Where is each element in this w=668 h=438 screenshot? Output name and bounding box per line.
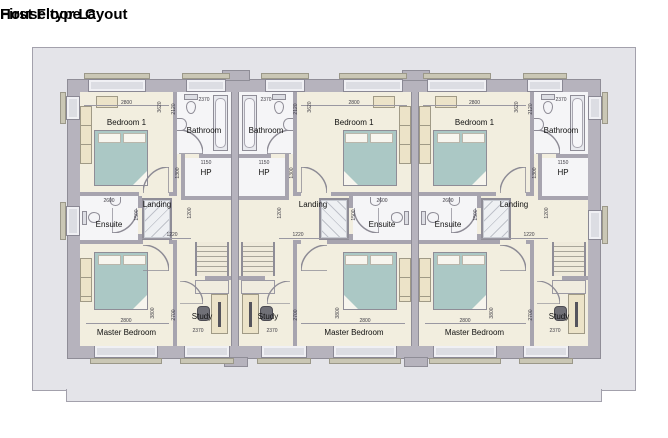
dim-study-width: 2370 [177,328,219,334]
pillow [370,255,393,265]
bed-master [343,252,397,310]
dim-stair-width: 1200 [187,202,193,224]
unit-2: Bedroom 1 Bathroom HP Landing Ensuite Ma… [239,92,411,346]
bed-bedroom1 [94,130,148,186]
pillow [123,133,146,143]
room-label-bathroom: Bathroom [534,126,588,135]
pillow [98,133,121,143]
door-arc-study [267,281,290,304]
linen-fold [472,295,486,309]
linen-fold [472,171,486,185]
dim-bedroom1-height: 3620 [307,96,313,118]
bathtub-inner [215,98,226,148]
room-label-master-bedroom: Master Bedroom [297,328,411,337]
bathtub-inner [244,98,255,148]
room-label-ensuite: Ensuite [419,220,477,229]
dim-hp-width: 1150 [183,160,229,166]
wall-bedroom-landing-stub [293,192,301,196]
bathtub [242,95,257,151]
pillow [98,255,121,265]
dim-bathroom-width: 2370 [538,97,584,103]
room-label-landing: Landing [275,200,351,209]
wall-master-top [477,240,500,244]
pillow [345,133,368,143]
dim-hp-height: 1300 [289,162,295,184]
room-label-study: Study [239,312,297,321]
dim-master-height: 3800 [150,302,156,324]
dim-study-height: 2700 [528,304,534,326]
dim-bedroom1-height: 3620 [157,96,163,118]
wall-ensuite-master [80,240,138,244]
dim-ensuite-width: 2600 [357,198,407,204]
staircase [241,242,275,276]
door-arc-bedroom1 [143,167,169,193]
wall-bathroom-hp [199,154,231,158]
wardrobe-master [419,258,431,302]
room-label-bathroom: Bathroom [177,126,231,135]
wardrobe-master [80,258,92,302]
dim-master-width: 2800 [435,318,495,324]
bed-bedroom1 [433,130,487,186]
dim-ensuite-width: 2600 [423,198,473,204]
room-label-landing: Landing [476,200,552,209]
room-label-bedroom1: Bedroom 1 [80,118,173,127]
room-label-bedroom1: Bedroom 1 [297,118,411,127]
door-arc-master [301,245,327,271]
bathtub [570,95,585,151]
bathtub [213,95,228,151]
dim-bathroom-height: 2120 [293,98,299,120]
wall-bedroom-landing [331,192,411,196]
dim-study-width: 2370 [251,328,293,334]
room-label-hp: HP [538,168,588,177]
dim-study-width: 2370 [534,328,576,334]
linen-fold [344,171,358,185]
pillow [462,133,485,143]
dim-stair-width: 1200 [544,202,550,224]
dim-master-height: 3800 [489,302,495,324]
pillow [462,255,485,265]
wall-bathroom-hp [239,154,271,158]
units-container: Bedroom 1 Bathroom HP Landing Ensuite Ma… [0,0,668,438]
staircase [552,242,586,276]
dim-bathroom-width: 2370 [243,97,289,103]
room-label-ensuite: Ensuite [353,220,411,229]
dim-study-height: 2700 [293,304,299,326]
room-label-master-bedroom: Master Bedroom [80,328,173,337]
wardrobe-master [399,258,411,302]
floor-plan-page: House type C First Floor Layout [0,0,668,438]
wardrobe-bedroom1 [80,106,92,164]
wall-bedroom-landing-stub [169,192,177,196]
wardrobe-bedroom1 [419,106,431,164]
wall-ensuite-master [419,240,477,244]
dim-bedroom1-height: 3620 [514,96,520,118]
door-arc-bedroom1 [301,167,327,193]
pillow [345,255,368,265]
bathtub-inner [572,98,583,148]
wardrobe-bedroom1 [399,106,411,164]
dim-landing-width: 1220 [151,232,193,238]
wall-bedroom-landing [419,192,496,196]
wall-master-top [327,240,353,244]
unit-1: Bedroom 1 Bathroom HP Landing Ensuite Ma… [80,92,231,346]
staircase [195,242,229,276]
room-label-hp: HP [181,168,231,177]
door-arc-study [180,281,203,304]
wall-bedroom-landing-stub [526,192,534,196]
room-label-study: Study [173,312,231,321]
bed-bedroom1 [343,130,397,186]
unit-3: Bedroom 1 Bathroom HP Landing Ensuite Ma… [419,92,588,346]
dim-hp-height: 1300 [175,162,181,184]
pillow [437,255,460,265]
dim-ensuite-height: 1500 [473,204,479,226]
dim-bedroom1-width: 2800 [297,100,411,106]
pillow [370,133,393,143]
room-label-ensuite: Ensuite [80,220,138,229]
bed-master [433,252,487,310]
room-label-bathroom: Bathroom [239,126,293,135]
linen-fold [344,295,358,309]
dim-master-height: 3800 [335,302,341,324]
linen-fold [133,295,147,309]
dim-hp-height: 1300 [532,162,538,184]
dim-bathroom-height: 2120 [171,98,177,120]
room-label-master-bedroom: Master Bedroom [419,328,530,337]
wall-ensuite-master [353,240,411,244]
bed-master [94,252,148,310]
dimension-line [481,238,548,239]
room-label-hp: HP [239,168,289,177]
dim-landing-width: 1220 [277,232,319,238]
dim-landing-width: 1220 [508,232,550,238]
dim-ensuite-width: 2600 [84,198,134,204]
door-arc-study [537,281,560,304]
dim-study-height: 2700 [171,304,177,326]
dim-ensuite-height: 1500 [351,204,357,226]
door-arc-master [500,245,526,271]
wall-master-top [138,240,143,244]
wall-bedroom-landing [80,192,139,196]
room-label-study: Study [530,312,588,321]
door-arc-master [143,245,169,271]
dim-stair-width: 1200 [277,202,283,224]
dimension-line [279,238,349,239]
dim-bathroom-height: 2120 [528,98,534,120]
wall-bathroom-hp [556,154,588,158]
dim-master-width: 2800 [335,318,395,324]
door-arc-bedroom1 [500,167,526,193]
room-label-bedroom1: Bedroom 1 [419,118,530,127]
dim-bathroom-width: 2370 [181,97,227,103]
dim-hp-width: 1150 [241,160,287,166]
dim-hp-width: 1150 [540,160,586,166]
dimension-line [142,238,191,239]
dim-ensuite-height: 1500 [134,204,140,226]
pillow [437,133,460,143]
dim-master-width: 2800 [96,318,156,324]
